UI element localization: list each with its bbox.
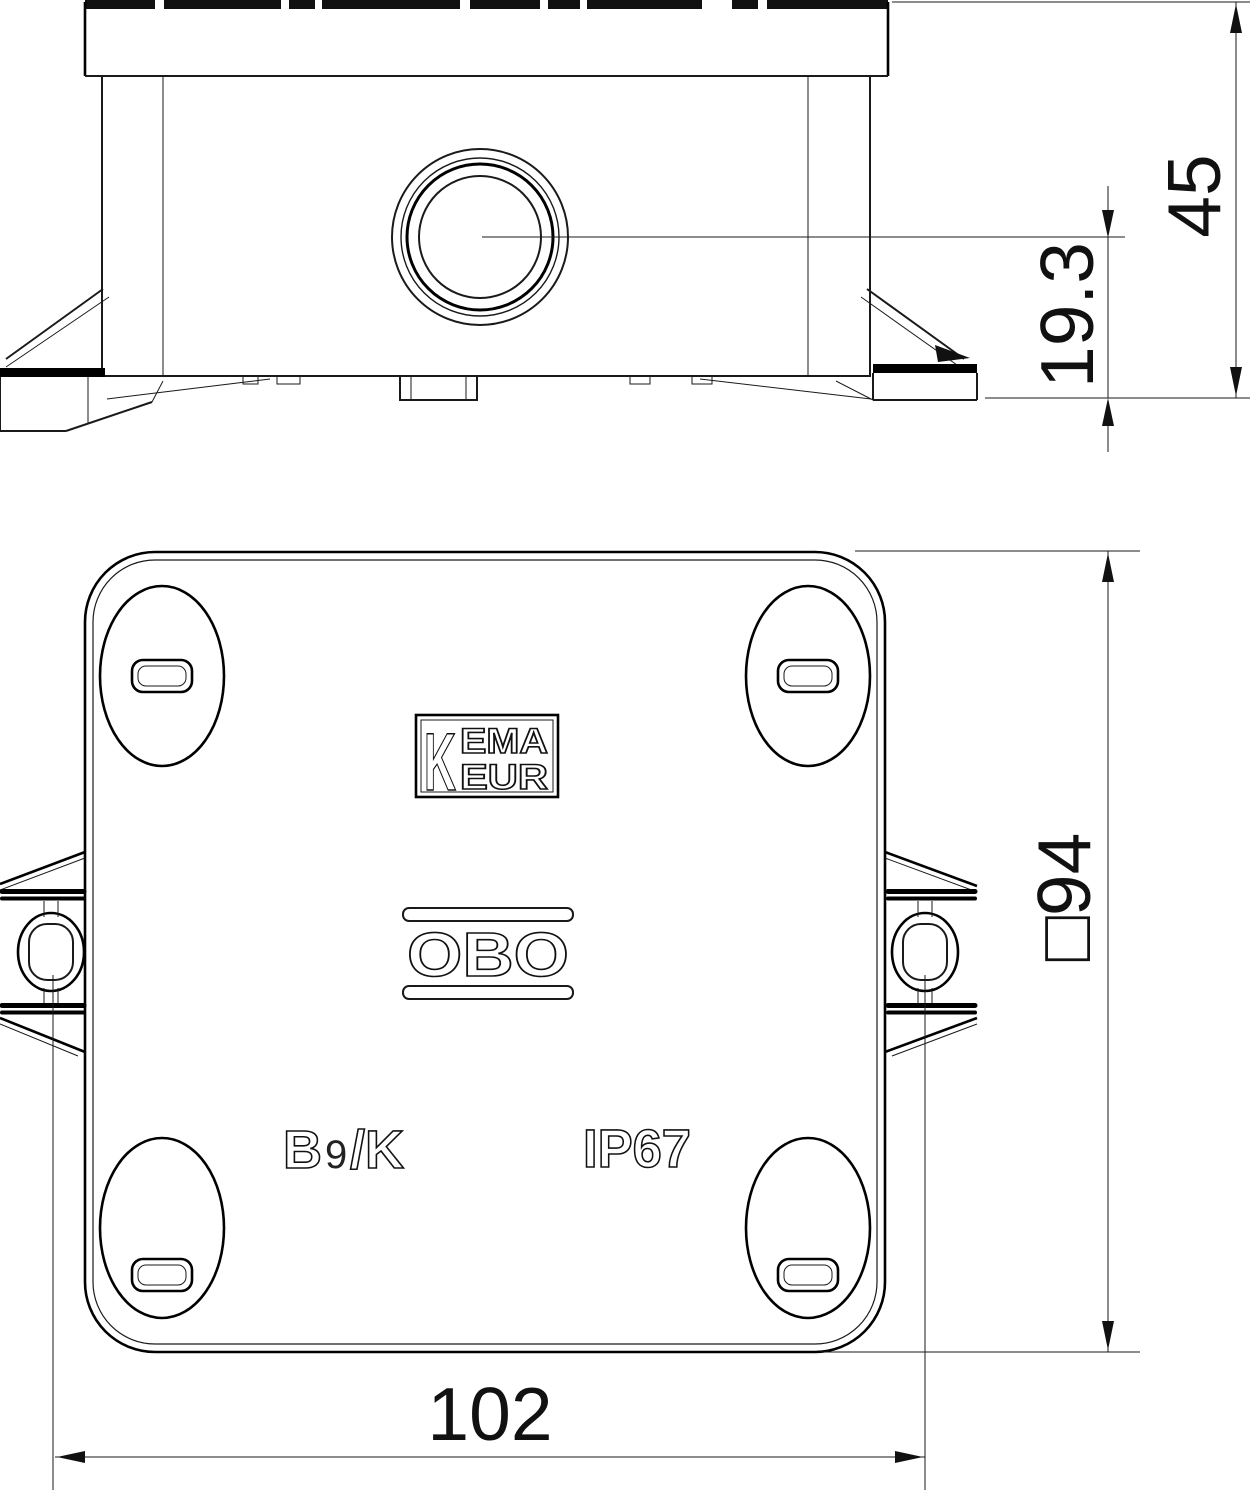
dimension-19-3: 19.3 [1025, 186, 1114, 452]
cable-gland [392, 149, 1125, 325]
kema-line2: EUR [460, 758, 548, 797]
screw-bottom-right [746, 1138, 870, 1318]
left-mounting-lug [0, 289, 270, 431]
side-view: 45 19.3 [0, 0, 1250, 452]
type-marking: B 9 /K IP67 [283, 1119, 691, 1180]
dim-45-label: 45 [1152, 154, 1236, 237]
right-fixing-flange [885, 852, 977, 1056]
type-k: /K [350, 1120, 404, 1180]
obo-logo: OBO [403, 908, 573, 999]
plan-view: K EMA EUR OBO B 9 /K IP67 [0, 551, 1140, 1490]
right-mounting-lug [700, 289, 977, 400]
dimension-102: 102 [53, 975, 925, 1490]
lid-outline [85, 2, 888, 76]
left-fixing-flange [0, 852, 85, 1056]
drawing-canvas: 45 19.3 [0, 0, 1254, 1500]
obo-text: OBO [407, 921, 569, 990]
kema-line1: EMA [460, 722, 548, 761]
screw-bottom-left [100, 1138, 224, 1318]
type-9: 9 [325, 1133, 347, 1177]
technical-drawing-page: 45 19.3 [0, 0, 1254, 1500]
kema-k: K [424, 717, 456, 808]
dim-19-3-label: 19.3 [1025, 242, 1109, 388]
dim-102-label: 102 [427, 1372, 552, 1456]
box-body [102, 76, 870, 377]
screw-top-right [746, 586, 870, 766]
dim-94-label: □94 [1022, 833, 1106, 962]
type-b: B [283, 1120, 322, 1180]
lug-gusset-wedge [935, 345, 970, 362]
screw-top-left [100, 586, 224, 766]
kema-keur-logo: K EMA EUR [416, 715, 558, 808]
ip-rating: IP67 [583, 1119, 691, 1179]
dimension-94: □94 [820, 551, 1140, 1352]
lid-top-band [85, 0, 888, 9]
bottom-feet [243, 376, 712, 400]
